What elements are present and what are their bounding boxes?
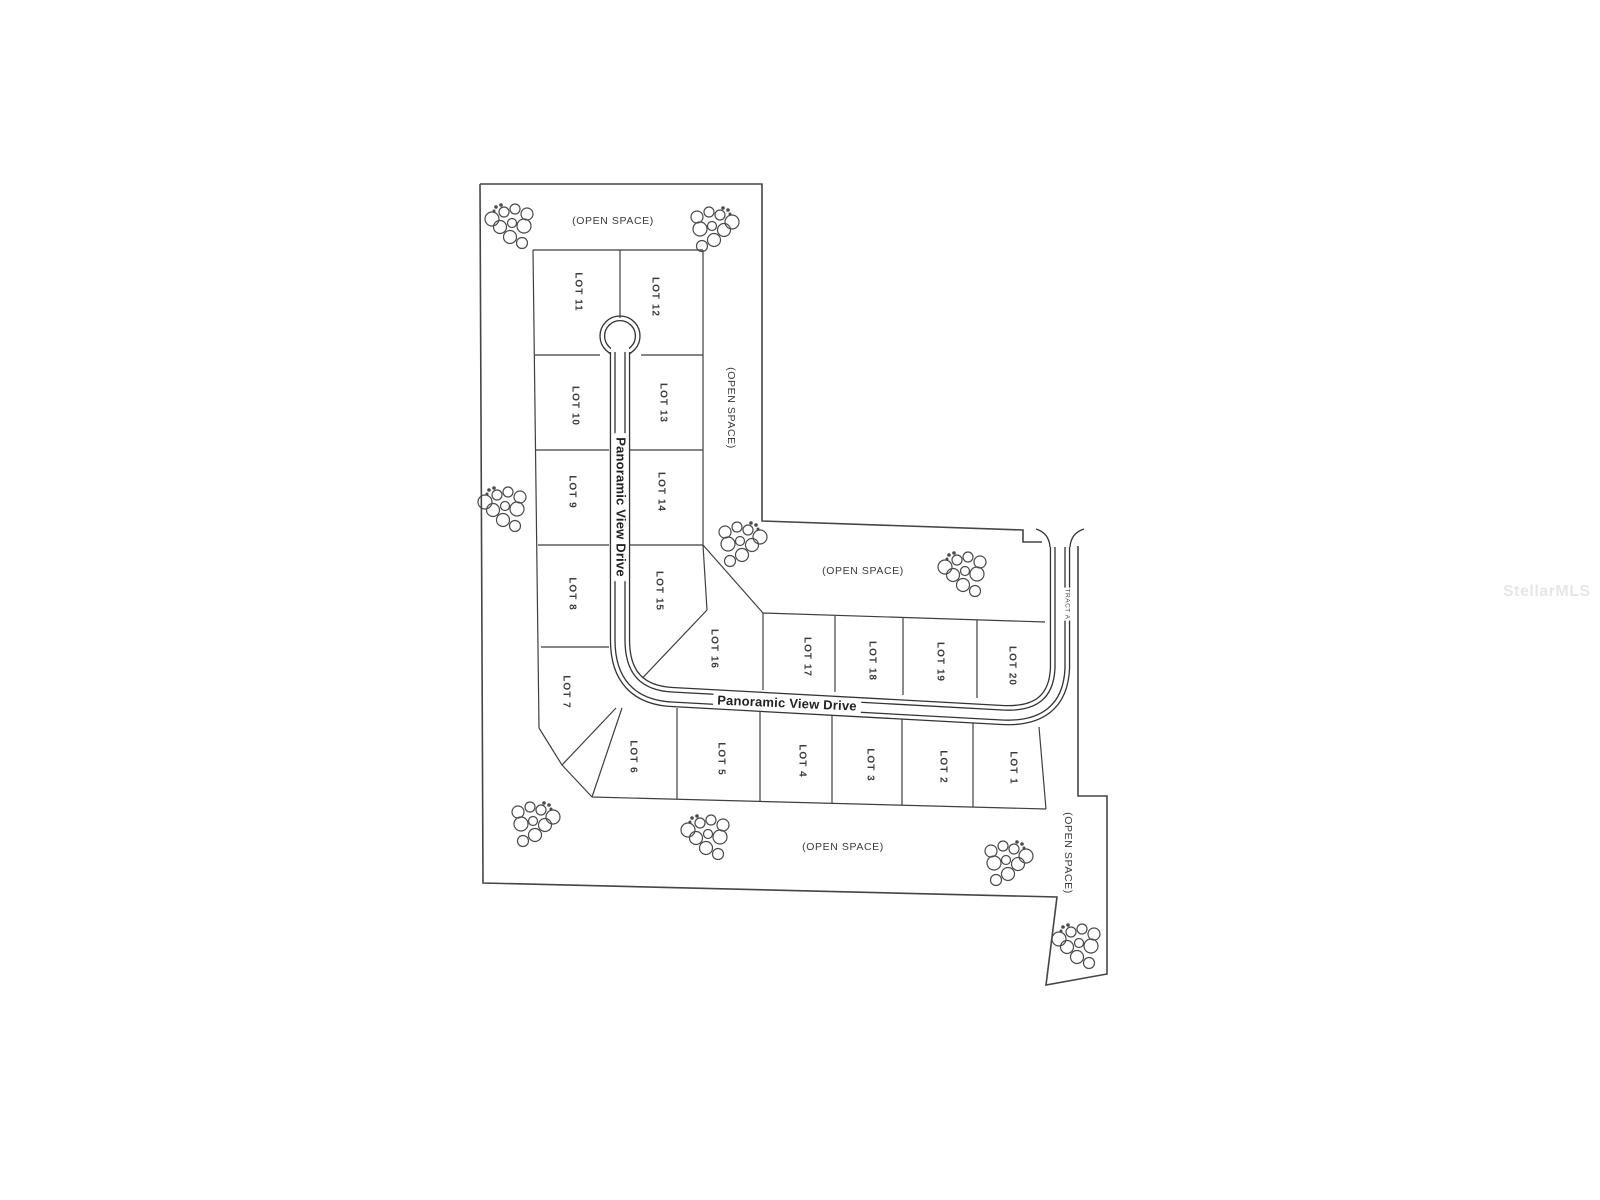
tree-cluster bbox=[478, 487, 526, 532]
tree-cluster bbox=[485, 204, 533, 249]
tree-cluster bbox=[691, 207, 739, 252]
tree-clusters bbox=[478, 204, 1100, 969]
plat-map-canvas: LOT 11LOT 12LOT 10LOT 13LOT 9LOT 14LOT 8… bbox=[0, 0, 1600, 1200]
mls-watermark: StellarMLS bbox=[1503, 583, 1591, 601]
tree-cluster bbox=[719, 522, 767, 567]
tree-cluster bbox=[1052, 924, 1100, 969]
tree-cluster bbox=[681, 815, 729, 860]
plat-linework bbox=[0, 0, 1600, 1200]
boundary-outline bbox=[480, 184, 1107, 985]
tree-cluster bbox=[985, 841, 1033, 886]
road-panoramic-view-drive bbox=[620, 345, 1060, 715]
tree-cluster bbox=[938, 552, 986, 597]
tree-cluster bbox=[512, 802, 560, 847]
